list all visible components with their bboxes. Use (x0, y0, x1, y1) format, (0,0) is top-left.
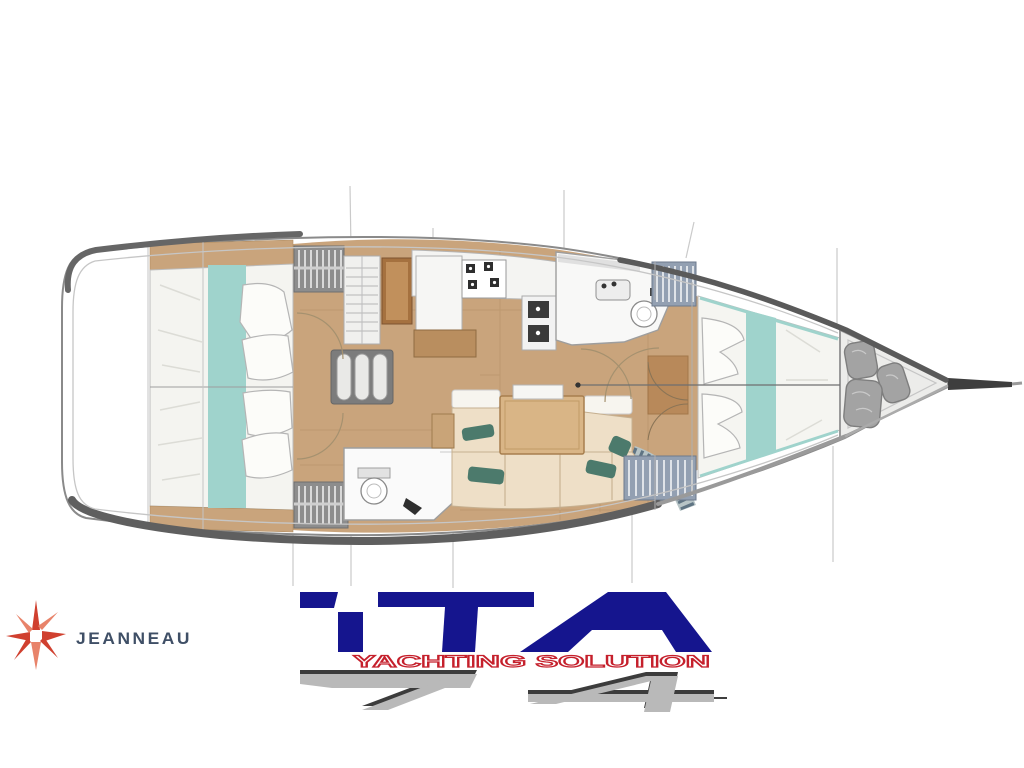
galley-sink (522, 296, 556, 350)
aft-head (344, 448, 458, 520)
number-74-face (300, 674, 714, 712)
ita-letter-i-stem (338, 612, 363, 652)
bowsprit (948, 378, 1012, 390)
toilet-tank (358, 468, 390, 478)
faucet-dot (602, 284, 607, 289)
mast-dot (575, 382, 580, 387)
ita-letter-i-dot (300, 592, 338, 608)
jeanneau-star-icon (6, 600, 66, 670)
galley-bench (414, 330, 476, 357)
bowsprit-tip (1012, 383, 1022, 384)
bed-teal-runner (208, 387, 246, 508)
ita-brand-letters (300, 592, 712, 652)
jeanneau-wordmark: JEANNEAU (76, 629, 192, 648)
bed-teal-runner (208, 265, 246, 387)
stove (462, 260, 506, 298)
aft-cabin-port (150, 240, 293, 387)
pillow (240, 284, 292, 342)
yacht-floorplan-page: JEANNEAU YACHTING SOLUTION (0, 0, 1024, 768)
ita-tagline: YACHTING SOLUTION (353, 653, 710, 671)
floorplan-drawing: JEANNEAU YACHTING SOLUTION (0, 0, 1024, 768)
settee-back-cushion (584, 396, 632, 414)
pillow (242, 433, 292, 478)
faucet-dot (612, 282, 617, 287)
hanging-locker-aft-starboard (294, 482, 348, 528)
companionway-steps (331, 350, 393, 404)
jeanneau-logo: JEANNEAU (6, 600, 192, 670)
nav-cabinet (344, 256, 380, 344)
salon-table (500, 385, 584, 454)
ita-letter-t-stem (442, 607, 478, 652)
station-line (686, 222, 694, 258)
ita-number-74 (300, 670, 727, 712)
ita-letter-t-bar (378, 592, 534, 607)
pillow (243, 390, 292, 436)
ita-logo: YACHTING SOLUTION (300, 592, 727, 712)
bed-teal-runner (746, 310, 776, 462)
table-leaf (513, 385, 563, 399)
ita-letter-a (520, 592, 712, 652)
settee-back-cushion (452, 390, 500, 408)
aft-cabin-starboard (150, 387, 293, 532)
toilet-bowl (361, 478, 387, 504)
chart-table (382, 258, 412, 324)
armrest-box (432, 414, 454, 448)
hanging-locker-aft-port (294, 246, 344, 292)
pillow (242, 335, 293, 380)
bow-sail-locker (840, 330, 948, 438)
galley-island (416, 256, 462, 330)
